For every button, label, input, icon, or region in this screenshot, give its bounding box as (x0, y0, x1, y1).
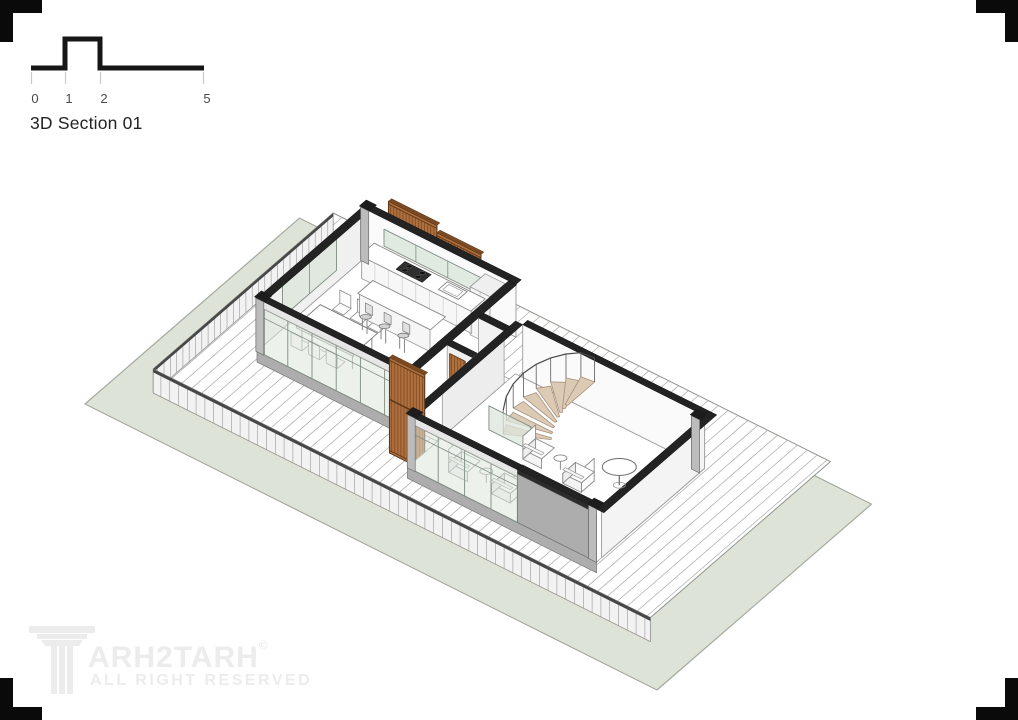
scale-bar-line (31, 39, 204, 68)
scale-label-0: 0 (26, 91, 44, 106)
copyright-icon: © (259, 638, 268, 652)
drawing-title: 3D Section 01 (30, 113, 230, 134)
scale-label-2: 2 (95, 91, 113, 106)
scale-label-5: 5 (198, 91, 216, 106)
scale-label-1: 1 (60, 91, 78, 106)
scale-bar-graphic (30, 28, 220, 86)
scale-bar: 0 1 2 5 3D Section 01 (30, 28, 230, 140)
scale-bar-ticks (32, 72, 204, 84)
watermark-tagline: ALL RIGHT RESERVED (90, 672, 312, 690)
watermark-brand: ARH2TARH© (88, 638, 268, 675)
watermark: ARH2TARH© ALL RIGHT RESERVED (26, 616, 256, 706)
scale-bar-labels: 0 1 2 5 (30, 91, 230, 107)
